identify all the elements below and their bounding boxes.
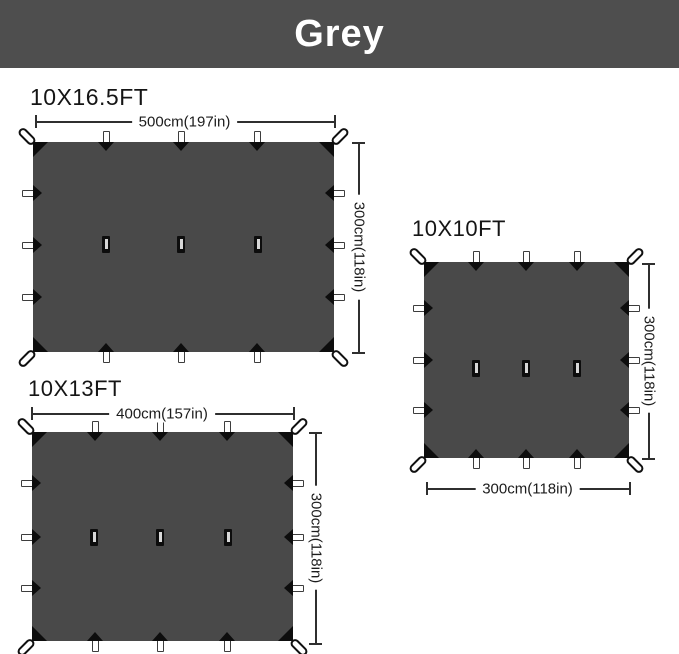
tarp-1-dimension-cap bbox=[334, 115, 336, 128]
tarp-2-dimension-cap bbox=[642, 458, 655, 460]
tarp-3-tie-tab-point-right bbox=[284, 475, 293, 491]
tarp-2-tie-tab-point-left bbox=[424, 402, 433, 418]
tarp-1-dimension-cap bbox=[352, 352, 365, 354]
tarp-3-tie-tab-point-right bbox=[284, 580, 293, 596]
tarp-3-tie-tab-stem-right bbox=[292, 480, 304, 487]
tarp-3-corner-patch-top-right bbox=[278, 432, 293, 447]
tarp-2-center-slot bbox=[573, 360, 581, 377]
tarp-2-center-slot bbox=[472, 360, 480, 377]
tarp-2-dimension-cap bbox=[426, 482, 428, 495]
tarp-3-tie-tab-point-bottom bbox=[219, 632, 235, 641]
tarp-1-tie-tab-point-bottom bbox=[173, 343, 189, 352]
tarp-2-dimension-cap bbox=[642, 263, 655, 265]
tarp-3-dimension-cap bbox=[309, 643, 322, 645]
tarp-3-size-label: 10X13FT bbox=[28, 376, 122, 402]
tarp-1-tie-tab-point-top bbox=[98, 142, 114, 151]
tarp-1-dimension-label-height: 300cm(118in) bbox=[351, 195, 368, 300]
tarp-3-tie-tab-stem-bottom bbox=[224, 640, 231, 652]
tarp-3-dimension-label-width: 400cm(157in) bbox=[109, 406, 215, 423]
tarp-1-tie-tab-stem-right bbox=[333, 190, 345, 197]
tarp-3-tie-tab-stem-bottom bbox=[157, 640, 164, 652]
tarp-1-tie-tab-point-left bbox=[33, 185, 42, 201]
tarp-2-tie-tab-stem-right bbox=[628, 407, 640, 414]
tarp-3-tie-tab-point-left bbox=[32, 475, 41, 491]
tarp-2-tie-tab-point-bottom bbox=[468, 449, 484, 458]
tarp-3-tie-tab-point-left bbox=[32, 529, 41, 545]
tarp-1-corner-patch-bottom-right bbox=[319, 337, 334, 352]
tarp-2-dimension-label-width: 300cm(118in) bbox=[475, 481, 580, 498]
tarp-3-tie-tab-stem-bottom bbox=[92, 640, 99, 652]
tarp-3-center-slot bbox=[90, 529, 98, 546]
tarp-3-tie-tab-point-left bbox=[32, 580, 41, 596]
tarp-1-size-label: 10X16.5FT bbox=[30, 84, 148, 111]
tarp-3-corner-patch-bottom-right bbox=[278, 626, 293, 641]
tarp-3-dimension-cap bbox=[309, 432, 322, 434]
tarp-2-dimension-label-height: 300cm(118in) bbox=[641, 308, 658, 413]
tarp-1-tie-tab-point-bottom bbox=[249, 343, 265, 352]
color-banner-label: Grey bbox=[294, 13, 385, 56]
tarp-3-tie-tab-point-bottom bbox=[152, 632, 168, 641]
tarp-2-tie-tab-stem-bottom bbox=[523, 457, 530, 469]
tarp-1-tie-tab-stem-right bbox=[333, 294, 345, 301]
tarp-size-diagram: Grey 500cm(197in)300cm(118in)10X16.5FT30… bbox=[0, 0, 679, 654]
tarp-3-tie-tab-stem-right bbox=[292, 534, 304, 541]
tarp-2-corner-patch-top-right bbox=[614, 262, 629, 277]
tarp-1-tie-tab-point-bottom bbox=[98, 343, 114, 352]
tarp-2-tie-tab-stem-right bbox=[628, 357, 640, 364]
tarp-1-center-slot bbox=[177, 236, 185, 253]
tarp-2-tie-tab-point-left bbox=[424, 352, 433, 368]
tarp-3-center-slot bbox=[156, 529, 164, 546]
tarp-2-corner-patch-bottom-left bbox=[424, 443, 439, 458]
tarp-1-tie-tab-point-right bbox=[325, 237, 334, 253]
tarp-1-dimension-label-width: 500cm(197in) bbox=[132, 114, 238, 131]
tarp-1-corner-patch-bottom-left bbox=[33, 337, 48, 352]
tarp-2-tie-tab-point-top bbox=[518, 262, 534, 271]
tarp-3-tie-tab-point-bottom bbox=[87, 632, 103, 641]
tarp-2-tie-tab-point-right bbox=[620, 352, 629, 368]
tarp-1-tie-tab-stem-bottom bbox=[254, 351, 261, 363]
tarp-2-tie-tab-point-bottom bbox=[569, 449, 585, 458]
tarp-1-dimension-cap bbox=[35, 115, 37, 128]
tarp-1-corner-patch-top-left bbox=[33, 142, 48, 157]
tarp-2-tie-tab-point-bottom bbox=[518, 449, 534, 458]
tarp-3-center-slot bbox=[224, 529, 232, 546]
tarp-3-tie-tab-point-top bbox=[152, 432, 168, 441]
tarp-3-corner-patch-bottom-left bbox=[32, 626, 47, 641]
tarp-1-center-slot bbox=[102, 236, 110, 253]
tarp-3-dimension-label-height: 300cm(118in) bbox=[308, 485, 325, 590]
tarp-1-corner-patch-top-right bbox=[319, 142, 334, 157]
tarp-2-size-label: 10X10FT bbox=[412, 216, 506, 242]
tarp-2-tie-tab-stem-bottom bbox=[473, 457, 480, 469]
tarp-1-tie-tab-point-top bbox=[249, 142, 265, 151]
tarp-2-tie-tab-point-left bbox=[424, 300, 433, 316]
tarp-2-tie-tab-stem-right bbox=[628, 305, 640, 312]
tarp-2-tie-tab-stem-bottom bbox=[574, 457, 581, 469]
tarp-1-tie-tab-point-right bbox=[325, 185, 334, 201]
tarp-1-tie-tab-point-right bbox=[325, 289, 334, 305]
tarp-2-tie-tab-point-right bbox=[620, 300, 629, 316]
tarp-2-tie-tab-point-top bbox=[569, 262, 585, 271]
tarp-1-tie-tab-stem-bottom bbox=[178, 351, 185, 363]
tarp-2-center-slot bbox=[522, 360, 530, 377]
tarp-2-dimension-cap bbox=[629, 482, 631, 495]
tarp-3-tie-tab-point-right bbox=[284, 529, 293, 545]
color-banner: Grey bbox=[0, 0, 679, 68]
tarp-1-tie-tab-point-top bbox=[173, 142, 189, 151]
tarp-1-tie-tab-stem-bottom bbox=[103, 351, 110, 363]
tarp-2-tie-tab-point-top bbox=[468, 262, 484, 271]
tarp-3-tie-tab-stem-right bbox=[292, 585, 304, 592]
tarp-1-tie-tab-point-left bbox=[33, 237, 42, 253]
tarp-3-corner-patch-top-left bbox=[32, 432, 47, 447]
tarp-2-corner-patch-top-left bbox=[424, 262, 439, 277]
tarp-1-tie-tab-point-left bbox=[33, 289, 42, 305]
tarp-3-tie-tab-point-top bbox=[219, 432, 235, 441]
tarp-1-tie-tab-stem-right bbox=[333, 242, 345, 249]
tarp-3-dimension-cap bbox=[31, 407, 33, 420]
tarp-3-tie-tab-point-top bbox=[87, 432, 103, 441]
tarp-1-center-slot bbox=[254, 236, 262, 253]
tarp-2-tie-tab-point-right bbox=[620, 402, 629, 418]
tarp-3-dimension-cap bbox=[293, 407, 295, 420]
tarp-1-dimension-cap bbox=[352, 142, 365, 144]
tarp-2-corner-patch-bottom-right bbox=[614, 443, 629, 458]
